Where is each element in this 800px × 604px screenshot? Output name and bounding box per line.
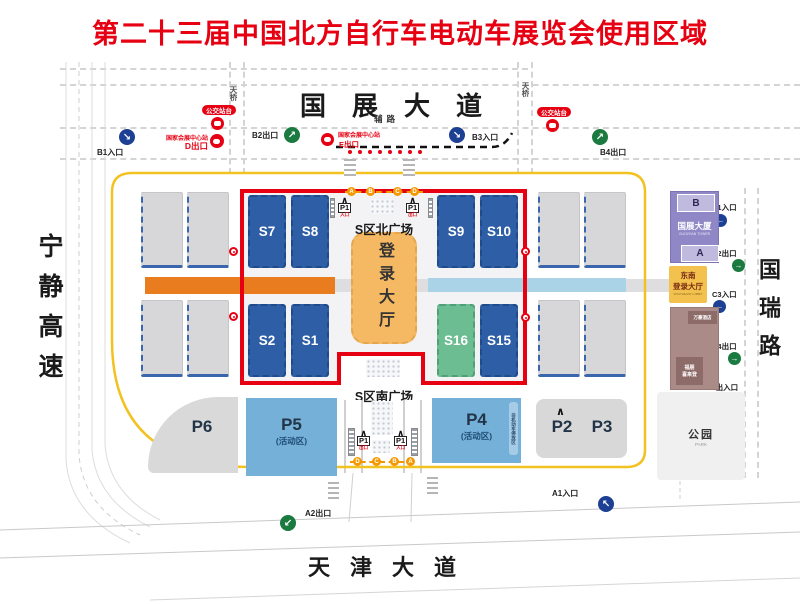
gate-post <box>348 428 355 456</box>
hall-s8: S8 <box>291 195 329 268</box>
gray-hall <box>538 300 580 377</box>
p4-bike-parking-note: 非机动车停放区 <box>511 413 517 445</box>
bus-icon <box>211 117 224 130</box>
parking-p4-sub: (活动区) <box>432 430 521 442</box>
gate-a1-icon: ↖ <box>598 496 614 512</box>
route-dot <box>408 150 412 154</box>
hotel-bottom-line1: 福朋 <box>676 364 703 371</box>
parking-p6: P6 <box>148 397 238 473</box>
parking-p5-label: P5 <box>246 415 337 435</box>
se-lobby-en: SOUTHEAST LOBBY <box>669 292 707 296</box>
bridge-label-east: 天桥 <box>520 82 531 97</box>
east-corridor <box>622 279 672 292</box>
crosswalk <box>403 159 415 176</box>
hall-s9: S9 <box>437 195 475 268</box>
hall-s7: S7 <box>248 195 286 268</box>
route-letter: A <box>406 457 415 466</box>
boundary-marker <box>521 313 530 322</box>
hall-s15: S15 <box>480 304 518 377</box>
route-letter: B <box>366 187 375 196</box>
gray-hall <box>584 192 626 268</box>
hotel-bottom-label: 福朋 喜来登 <box>676 357 703 385</box>
bridge-road-line <box>229 62 231 174</box>
road-line <box>60 127 800 129</box>
boundary-marker <box>521 247 530 256</box>
gate-b2-icon: ↗ <box>284 127 300 143</box>
gray-hall <box>187 300 229 377</box>
gate-a2-label: A2出口 <box>305 508 331 519</box>
metro-station-label: 国家会展中心站 <box>338 130 380 139</box>
p1-north-out: ∧ P1 出口 <box>406 197 419 217</box>
parking-p6-label: P6 <box>166 417 238 437</box>
parking-p5-sub: (活动区) <box>246 435 337 447</box>
bus-glyph <box>214 121 221 126</box>
road-right-label: 国瑞路 <box>752 258 784 372</box>
gate-b4-icon: ↗ <box>592 129 608 145</box>
hotel-building: 万豪酒店 福朋 喜来登 <box>670 307 719 390</box>
p1-out-label: 出口 <box>359 446 368 451</box>
bridge-road-line <box>517 62 519 174</box>
gray-hall <box>584 300 626 377</box>
hall-s16: S16 <box>437 304 475 377</box>
metro-icon <box>321 133 334 146</box>
metro-exit-d-label: D出口 <box>176 140 208 152</box>
hall-s15-label: S15 <box>487 333 511 348</box>
gate-b1-icon: ↘ <box>119 129 135 145</box>
gate-b2-label: B2出口 <box>252 130 278 141</box>
hall-s10-label: S10 <box>487 224 511 239</box>
route-dot <box>378 150 382 154</box>
hall-s1: S1 <box>291 304 329 377</box>
hall-s7-label: S7 <box>259 224 276 239</box>
route-letter: A <box>347 187 356 196</box>
crosswalk <box>344 159 356 176</box>
gate-a2-icon: ↙ <box>280 515 296 531</box>
gate-post <box>428 198 433 218</box>
metro-exit-e-label: E出口 <box>339 139 359 150</box>
gray-hall <box>141 300 183 377</box>
bus-glyph <box>549 123 556 128</box>
guozhan-tower: B 国展大厦 GUOZHAN TOWER A <box>670 191 719 263</box>
gate-a1-label: A1入口 <box>552 488 578 499</box>
parking-p5: P5 (活动区) <box>246 398 337 476</box>
hall-s2: S2 <box>248 304 286 377</box>
crosshatch-area <box>371 401 393 435</box>
gate-c2-icon: → <box>732 259 745 272</box>
gate-post <box>330 198 335 218</box>
hall-s8-label: S8 <box>302 224 319 239</box>
north-plaza-label: S区北广场 <box>348 219 420 238</box>
parking-p2-label: P2 <box>544 417 580 437</box>
crosswalk <box>427 476 438 494</box>
login-hall-label: 登录大厅 <box>372 242 396 334</box>
road-line <box>60 68 528 70</box>
bus-icon <box>546 119 559 132</box>
p1-in-label: 入口 <box>396 446 405 451</box>
route-letter: C <box>393 187 402 196</box>
route-dot <box>358 150 362 154</box>
gate-b4-label: B4出口 <box>600 147 626 158</box>
parking-p4-label: P4 <box>432 410 521 430</box>
aux-road-label: 辅路 <box>374 113 399 125</box>
hotel-bottom-line2: 喜来登 <box>676 371 703 378</box>
route-letter: C <box>372 457 381 466</box>
hall-s9-label: S9 <box>448 224 465 239</box>
bus-stop-label-east: 公交站台 <box>537 107 571 117</box>
gray-hall <box>187 192 229 268</box>
gray-hall <box>538 192 580 268</box>
hotel-top-label: 万豪酒店 <box>688 311 717 324</box>
login-hall: 登录大厅 <box>351 232 417 344</box>
se-lobby-line2: 登录大厅 <box>669 281 707 292</box>
bridge-label-west: 天桥 <box>228 86 239 101</box>
crosshatch-area <box>366 359 400 377</box>
hall-s1-label: S1 <box>302 333 319 348</box>
southeast-lobby: 东南 登录大厅 SOUTHEAST LOBBY <box>669 266 707 303</box>
boundary-marker <box>229 312 238 321</box>
road-line <box>60 158 800 160</box>
hall-s16-label: S16 <box>444 333 468 348</box>
tower-a-wing: A <box>681 245 719 262</box>
route-dot <box>418 150 422 154</box>
road-bottom-label: 天津大道 <box>308 550 476 582</box>
venue-map: 第二十三届中国北方自行车电动车展览会使用区域 S7 S8 S9 S10 <box>0 0 800 604</box>
p4-bike-parking-strip: 非机动车停放区 <box>509 402 518 455</box>
route-letter: D <box>353 457 362 466</box>
road-left-label: 宁静高速 <box>31 233 67 393</box>
p1-in-label: 入口 <box>340 213 349 218</box>
gate-c3-label: C3入口 <box>712 289 737 300</box>
hall-s2-label: S2 <box>259 333 276 348</box>
parking-p2-p3: ∧ P2 P3 <box>536 399 627 458</box>
metro-glyph <box>324 137 331 142</box>
parking-p4: P4 (活动区) <box>432 398 521 463</box>
p1-south-in: ∧ P1 入口 <box>394 430 407 450</box>
park-area: 公园 PARK <box>657 392 745 480</box>
gate-b3-label: B3入口 <box>472 132 498 143</box>
gate-b1-label: B1入口 <box>97 147 123 158</box>
gate-c4-icon: → <box>728 352 741 365</box>
metro-glyph <box>213 139 220 144</box>
park-label: 公园 <box>657 426 745 442</box>
p1-south-out: ∧ P1 出口 <box>357 430 370 450</box>
route-dot <box>368 150 372 154</box>
gate-b3-icon: ↘ <box>449 127 465 143</box>
tower-name: 国展大厦 <box>671 220 718 232</box>
route-dot <box>348 150 352 154</box>
bridge-road-line <box>531 62 533 174</box>
parking-p3-label: P3 <box>584 417 620 437</box>
route-letter: B <box>390 457 399 466</box>
route-dot <box>398 150 402 154</box>
crosshatch-area <box>370 199 394 214</box>
park-label-en: PARK <box>657 442 745 447</box>
bridge-road-line <box>243 62 245 174</box>
roof-icon: ∧ <box>556 409 565 417</box>
metro-icon <box>210 134 224 148</box>
west-orange-corridor <box>145 277 335 294</box>
tower-b-wing: B <box>677 194 715 212</box>
p1-north-in: ∧ P1 入口 <box>338 197 351 217</box>
page-title: 第二十三届中国北方自行车电动车展览会使用区域 <box>0 12 800 51</box>
gate-post <box>411 428 418 456</box>
crosswalk <box>328 481 339 499</box>
hall-s10: S10 <box>480 195 518 268</box>
gray-hall <box>141 192 183 268</box>
road-top-label: 国展大道 <box>300 86 508 123</box>
route-dot <box>388 150 392 154</box>
p1-out-label: 出口 <box>408 213 417 218</box>
se-lobby-line1: 东南 <box>669 270 707 281</box>
east-blue-corridor <box>428 278 626 292</box>
tower-name-en: GUOZHAN TOWER <box>671 232 718 236</box>
boundary-marker <box>229 247 238 256</box>
bus-stop-label-west: 公交站台 <box>202 105 236 115</box>
crosshatch-area <box>372 440 390 453</box>
